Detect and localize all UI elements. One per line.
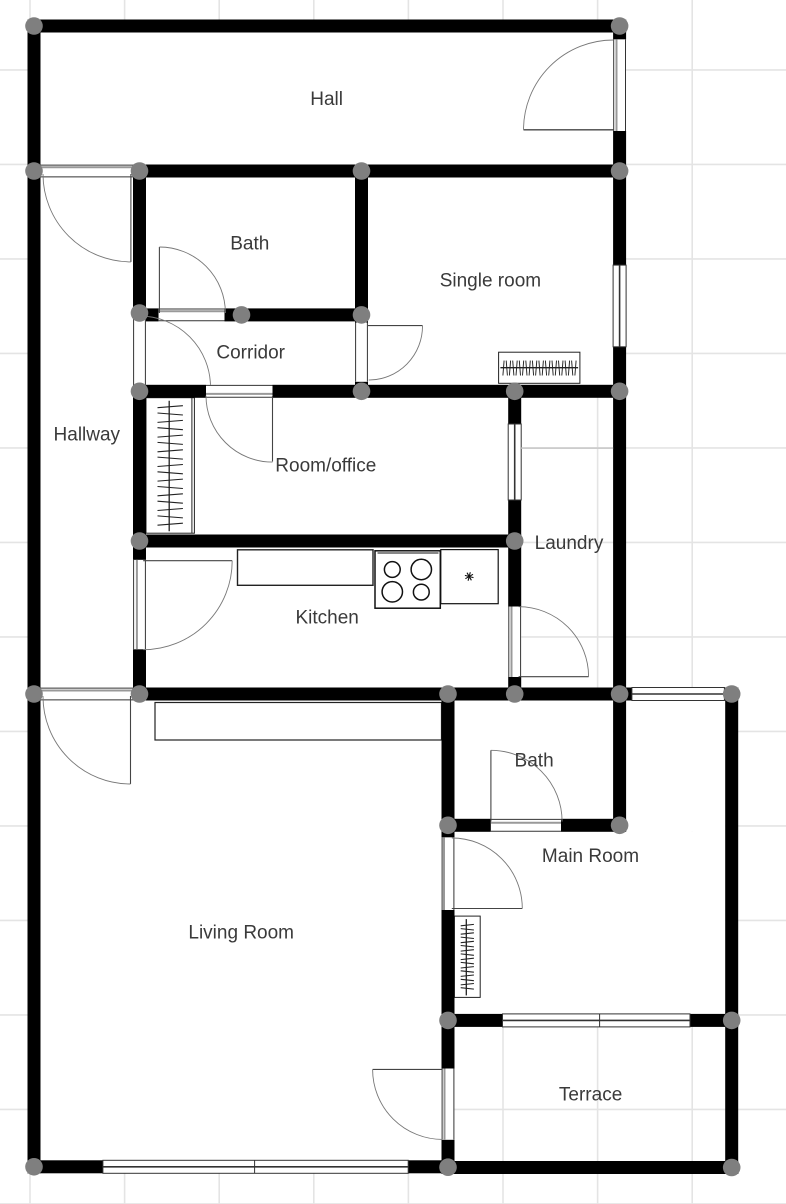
svg-text:Bath: Bath xyxy=(515,750,554,771)
svg-text:Terrace: Terrace xyxy=(559,1085,622,1106)
svg-text:Hallway: Hallway xyxy=(54,425,121,446)
svg-text:Corridor: Corridor xyxy=(216,343,285,364)
svg-text:Bath: Bath xyxy=(230,233,269,254)
svg-text:Main Room: Main Room xyxy=(542,846,639,867)
svg-text:Living Room: Living Room xyxy=(188,923,294,944)
svg-text:Room/office: Room/office xyxy=(275,456,376,477)
svg-text:Single room: Single room xyxy=(440,271,541,292)
svg-text:Laundry: Laundry xyxy=(535,533,604,554)
svg-text:Kitchen: Kitchen xyxy=(296,608,359,629)
svg-text:Hall: Hall xyxy=(310,89,343,110)
